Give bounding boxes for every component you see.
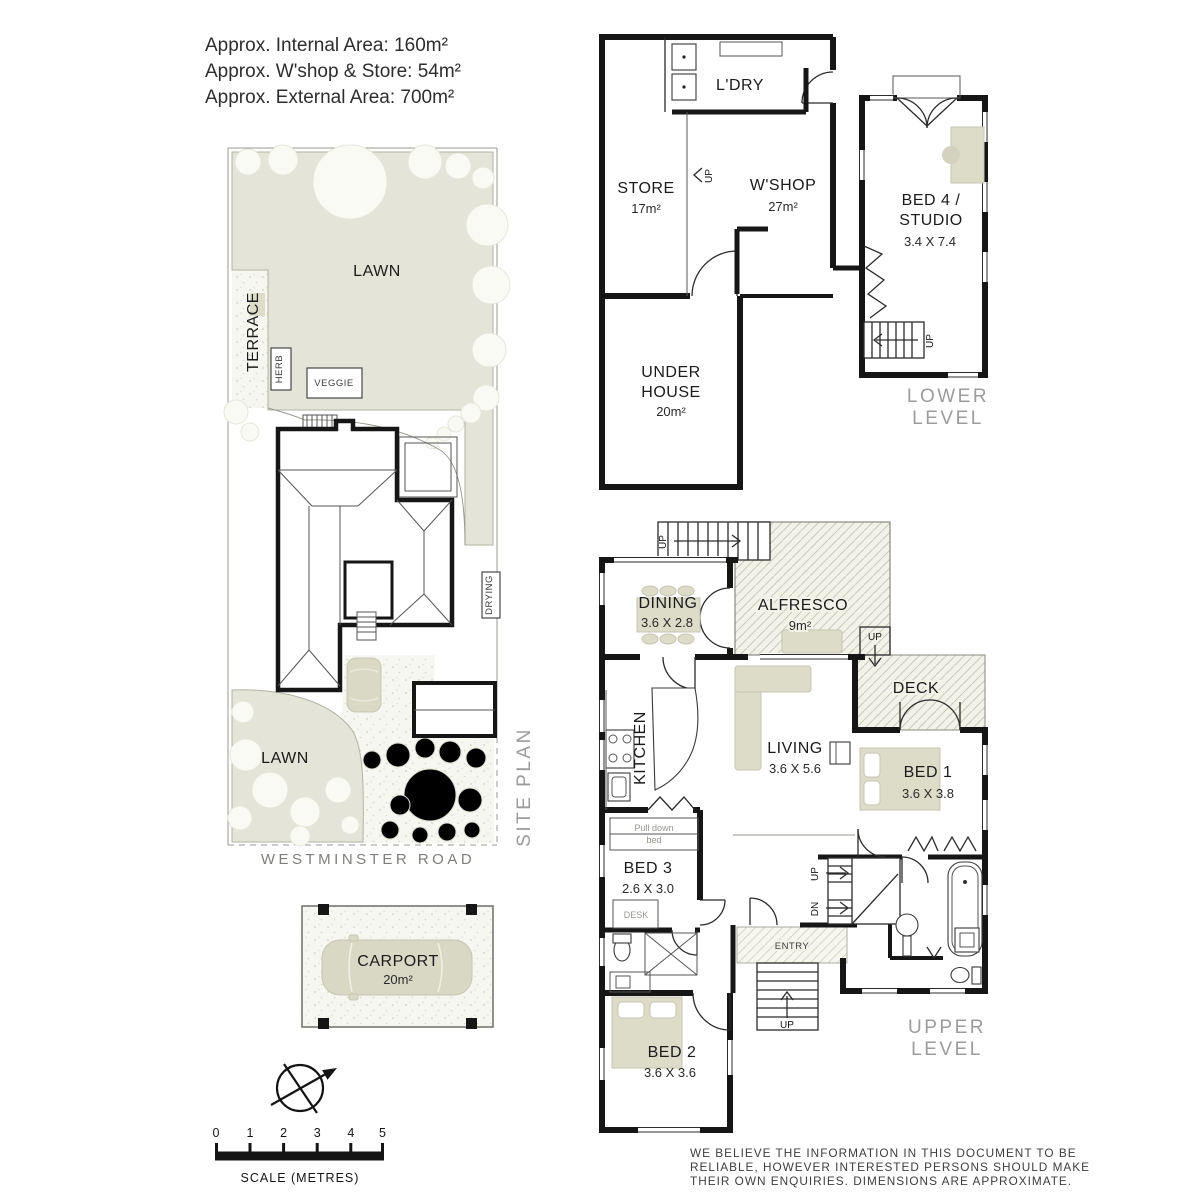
kitchen-island: [652, 688, 698, 790]
alfresco-label: ALFRESCO: [758, 597, 848, 614]
scale-tick-1: 1: [247, 1126, 254, 1140]
desk-label: DESK: [624, 910, 649, 920]
disclaimer-line-1: WE BELIEVE THE INFORMATION IN THIS DOCUM…: [690, 1146, 1077, 1160]
pull-down-bed-label-2: bed: [646, 835, 661, 845]
door-under-house: [692, 251, 737, 296]
bed4-dim-label: 3.4 X 7.4: [904, 234, 956, 249]
wshop-area-label: 27m²: [768, 199, 798, 214]
bathroom-left: [610, 933, 697, 992]
drying-area: DRYING: [482, 572, 500, 618]
site-plan-caption: SITE PLAN: [514, 727, 535, 847]
road-label: WESTMINSTER ROAD: [261, 851, 475, 868]
lower-level-plan: UP: [599, 34, 989, 490]
carport-plan: CARPORT 20m²: [302, 904, 493, 1029]
vanity: [955, 928, 979, 952]
scale-tick-4: 4: [347, 1126, 354, 1140]
veggie-bed: VEGGIE: [307, 368, 362, 398]
top-stairs: [658, 522, 770, 560]
bed2-label: BED 2: [648, 1044, 697, 1061]
alfresco-area-label: 9m²: [789, 618, 812, 633]
north-arrowhead: [322, 1068, 337, 1080]
living-dim-label: 3.6 X 5.6: [769, 761, 821, 776]
carport-area-label: 20m²: [383, 972, 413, 987]
up-store-label: UP: [704, 169, 715, 183]
entry-label: ENTRY: [775, 941, 810, 952]
bathroom-right: [896, 862, 982, 984]
scale-tick-5: 5: [379, 1126, 386, 1140]
toilet-right: [951, 968, 969, 983]
scale-bar: 0 1 2 3 4 5 SCALE (METRES): [213, 1126, 387, 1185]
kitchen-fixtures: [606, 688, 698, 810]
laundry-room: [665, 37, 806, 112]
lawn-top-label: LAWN: [353, 263, 401, 280]
up-stairs-label: UP: [925, 334, 936, 348]
sofa-horizontal: [735, 666, 811, 692]
area-summary: Approx. Internal Area: 160m² Approx. W's…: [205, 35, 461, 108]
dn-mid-label: DN: [810, 902, 821, 916]
wshop-label: W'SHOP: [750, 177, 817, 194]
lower-level-caption-1: LOWER: [907, 386, 989, 407]
bed3-dim-label: 2.6 X 3.0: [622, 881, 674, 896]
internal-area-text: Approx. Internal Area: 160m²: [205, 35, 448, 56]
store-area-label: 17m²: [631, 201, 661, 216]
center-stairs: [828, 858, 900, 924]
cross-needle: [284, 1064, 317, 1113]
wshop-wall: [737, 229, 768, 294]
dining-label: DINING: [639, 595, 698, 612]
external-area-text: Approx. External Area: 700m²: [205, 87, 454, 108]
porch-landing: [893, 76, 960, 98]
french-doors-bed4: [897, 98, 957, 128]
scale-tick-3: 3: [314, 1126, 321, 1140]
disclaimer: WE BELIEVE THE INFORMATION IN THIS DOCUM…: [690, 1146, 1090, 1188]
dining-dim-label: 3.6 X 2.8: [641, 615, 693, 630]
annex-stairs: [864, 322, 924, 358]
bed4-label-1: BED 4 /: [902, 192, 961, 209]
upper-level-caption-2: LEVEL: [911, 1039, 983, 1060]
bed2-dim-label: 3.6 X 3.6: [644, 1065, 696, 1080]
drying-label: DRYING: [484, 575, 495, 615]
up-entry-label: UP: [780, 1020, 794, 1031]
herb-bed: HERB: [271, 348, 291, 390]
disclaimer-line-3: THEIR OWN ENQUIRIES. DIMENSIONS ARE APPR…: [690, 1174, 1072, 1188]
bed1-dim-label: 3.6 X 3.8: [902, 786, 954, 801]
bed4-pillow: [942, 146, 960, 164]
alfresco-sofa: [782, 630, 842, 653]
ldry-label: L'DRY: [716, 77, 764, 94]
rear-steps: [357, 612, 376, 640]
up-top-label: UP: [658, 535, 669, 549]
upper-level-caption-1: UPPER: [908, 1017, 986, 1038]
under-house-label-1: UNDER: [641, 364, 700, 381]
bed3-label: BED 3: [624, 860, 673, 877]
courtyard: [345, 562, 392, 618]
carport-label: CARPORT: [357, 953, 438, 970]
floor-plan-page: Approx. Internal Area: 160m² Approx. W's…: [0, 0, 1200, 1200]
herb-label: HERB: [274, 355, 285, 383]
bed4-label-2: STUDIO: [899, 212, 962, 229]
under-house-label-2: HOUSE: [641, 384, 700, 401]
under-house-area-label: 20m²: [656, 404, 686, 419]
house-footprint: [278, 415, 457, 690]
lower-level-caption-2: LEVEL: [912, 408, 984, 429]
car-driveway: [347, 658, 381, 712]
scale-tick-2: 2: [280, 1126, 287, 1140]
veggie-label: VEGGIE: [314, 378, 353, 389]
lawn-bottom-label: LAWN: [261, 750, 309, 767]
scale-caption: SCALE (METRES): [241, 1171, 360, 1185]
up-mid-label: UP: [810, 867, 821, 881]
pull-down-bed-label-1: Pull down: [634, 823, 673, 833]
basin: [896, 914, 918, 936]
house-walls: [278, 421, 452, 690]
kitchen-label: KITCHEN: [632, 711, 649, 785]
store-label: STORE: [617, 180, 674, 197]
upper-level-plan: UP UP: [598, 522, 989, 1134]
understair-up-marker: UP: [694, 168, 715, 183]
compass: [271, 1064, 337, 1113]
bed1-label: BED 1: [904, 764, 953, 781]
scale-tick-0: 0: [213, 1126, 220, 1140]
terrace-label: TERRACE: [245, 292, 262, 372]
living-label: LIVING: [767, 740, 822, 757]
outbuilding: [414, 683, 495, 736]
wshop-store-area-text: Approx. W'shop & Store: 54m²: [205, 61, 461, 82]
site-plan: TERRACE HERB VEGGIE DRYING LAWN LAWN WES…: [224, 145, 535, 868]
bed4-robe: [864, 246, 886, 318]
floor-plan-drawing: Approx. Internal Area: 160m² Approx. W's…: [0, 0, 1200, 1200]
tv-unit: [830, 742, 850, 764]
disclaimer-line-2: RELIABLE, HOWEVER INTERESTED PERSONS SHO…: [690, 1160, 1090, 1174]
deck-label: DECK: [893, 680, 939, 697]
up-deck-label: UP: [868, 632, 882, 643]
